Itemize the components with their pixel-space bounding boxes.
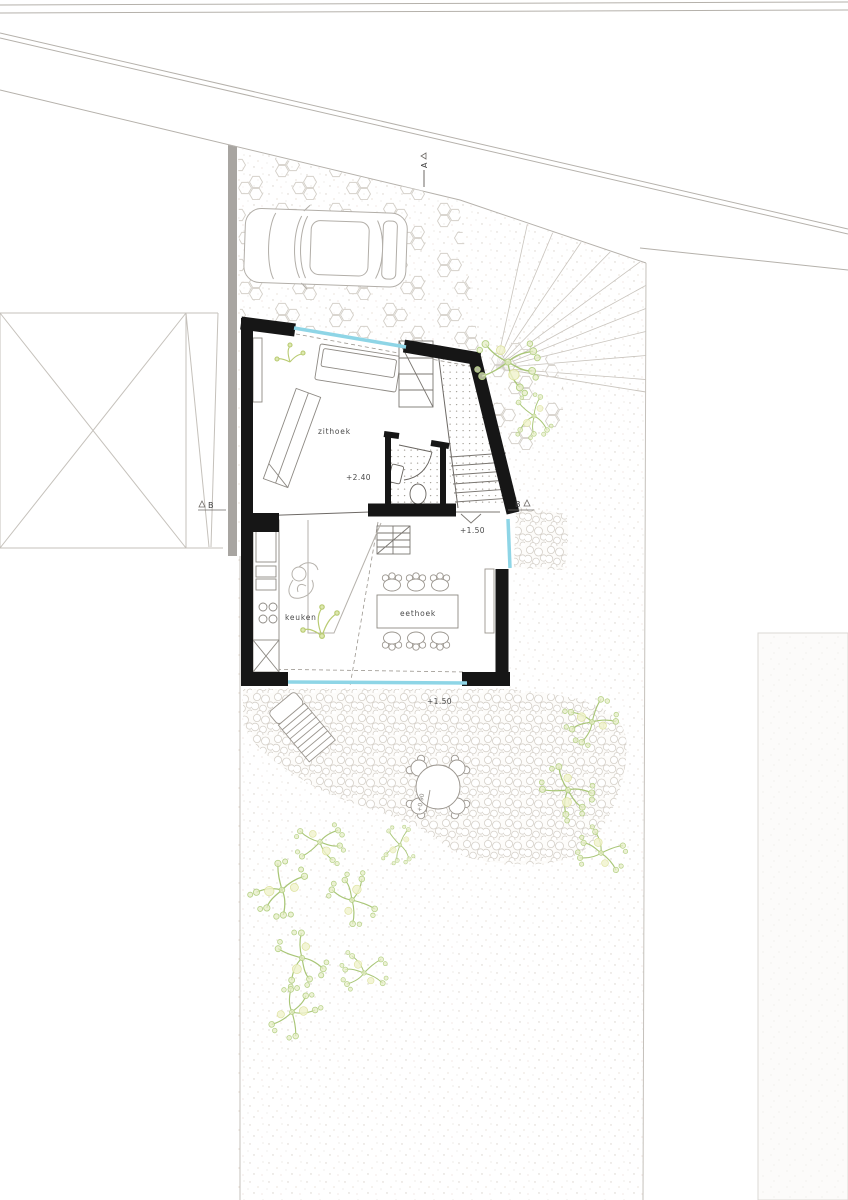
room-label-dining: eethoek bbox=[400, 609, 436, 618]
neighbor-building-left bbox=[0, 313, 223, 548]
room-label-kitchen: keuken bbox=[285, 613, 317, 622]
car bbox=[243, 203, 408, 293]
wall-step-block bbox=[253, 513, 279, 532]
neighbor-gutter-line bbox=[186, 313, 209, 547]
stair-mid-steps bbox=[377, 526, 410, 554]
section-a-triangle bbox=[421, 153, 426, 159]
boundary-wall-strip bbox=[228, 145, 237, 556]
level-label-dining: +1.50 bbox=[460, 526, 485, 535]
level-label-terrace: +1.50 bbox=[427, 697, 452, 706]
window-side-right bbox=[508, 519, 510, 568]
level-label-living: +2.40 bbox=[346, 473, 371, 482]
house: zithoek +2.40 keuken eethoek +1.50 bbox=[241, 318, 516, 688]
road-top-edge-line bbox=[0, 2, 848, 5]
kitchen-oven-2 bbox=[256, 579, 276, 590]
neighbor-gutter-line-2 bbox=[211, 313, 218, 547]
car-trunk bbox=[382, 221, 398, 279]
kitchen-counter bbox=[253, 520, 279, 672]
road-top-edge-line-2 bbox=[0, 10, 848, 13]
wall-top-left bbox=[241, 323, 295, 330]
kitchen-appliance-x bbox=[253, 640, 279, 672]
neighbor-plot-right bbox=[758, 633, 848, 1200]
site-plan-sheet: zithoek +2.40 keuken eethoek +1.50 +0.90 bbox=[0, 0, 848, 1200]
section-a-letter: A bbox=[420, 162, 429, 168]
section-b-right-letter: B bbox=[515, 500, 521, 509]
room-label-living: zithoek bbox=[318, 427, 351, 436]
road-near-edge-continuation bbox=[640, 248, 848, 270]
wall-bathroom-top bbox=[431, 443, 449, 446]
car-roof bbox=[310, 220, 370, 276]
dining-wall-shelf bbox=[485, 569, 494, 633]
window-bottom bbox=[288, 682, 467, 683]
section-marker-a: A bbox=[420, 153, 429, 187]
section-b-left-letter: B bbox=[208, 501, 214, 510]
wall-shelf bbox=[253, 338, 262, 402]
kitchen-oven bbox=[256, 566, 276, 577]
plan-drawing: zithoek +2.40 keuken eethoek +1.50 +0.90 bbox=[0, 0, 848, 1200]
wall-bathroom-stub bbox=[384, 434, 399, 436]
section-marker-b-left: B bbox=[198, 501, 226, 510]
